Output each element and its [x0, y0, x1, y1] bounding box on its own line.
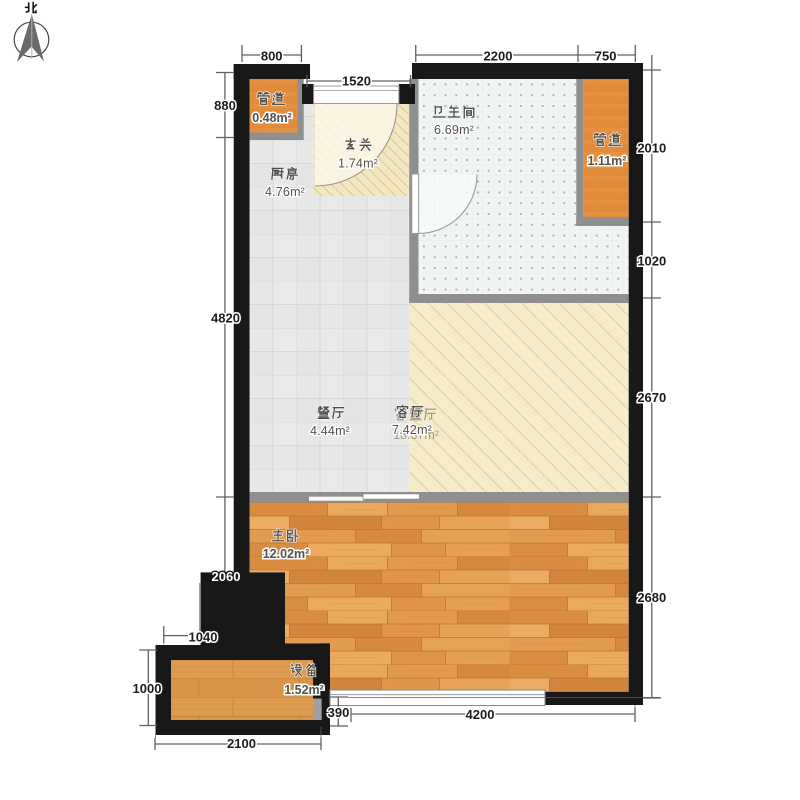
svg-text:2670: 2670 — [637, 390, 666, 405]
svg-text:7.42m²: 7.42m² — [392, 423, 432, 437]
svg-text:750: 750 — [595, 49, 617, 64]
svg-text:1000: 1000 — [133, 681, 162, 696]
svg-text:1020: 1020 — [637, 254, 666, 269]
svg-text:880: 880 — [214, 98, 236, 113]
svg-text:1.74m²: 1.74m² — [338, 157, 378, 171]
svg-text:4.76m²: 4.76m² — [265, 185, 305, 199]
svg-text:2200: 2200 — [484, 49, 513, 64]
svg-text:4820: 4820 — [211, 311, 240, 326]
svg-text:2680: 2680 — [637, 590, 666, 605]
svg-text:390: 390 — [328, 705, 350, 720]
svg-text:1520: 1520 — [342, 74, 371, 89]
svg-text:2060: 2060 — [212, 569, 241, 584]
svg-text:4200: 4200 — [466, 707, 495, 722]
svg-text:12.02m²: 12.02m² — [263, 547, 310, 561]
svg-text:2100: 2100 — [227, 736, 256, 751]
svg-text:1040: 1040 — [189, 630, 218, 645]
svg-text:6.69m²: 6.69m² — [434, 123, 474, 137]
svg-text:2010: 2010 — [637, 141, 666, 156]
svg-text:4.44m²: 4.44m² — [310, 424, 350, 438]
svg-text:1.11m²: 1.11m² — [588, 154, 627, 168]
svg-text:1.52m²: 1.52m² — [284, 683, 324, 697]
svg-text:800: 800 — [261, 49, 283, 64]
svg-text:0.48m²: 0.48m² — [252, 111, 292, 125]
